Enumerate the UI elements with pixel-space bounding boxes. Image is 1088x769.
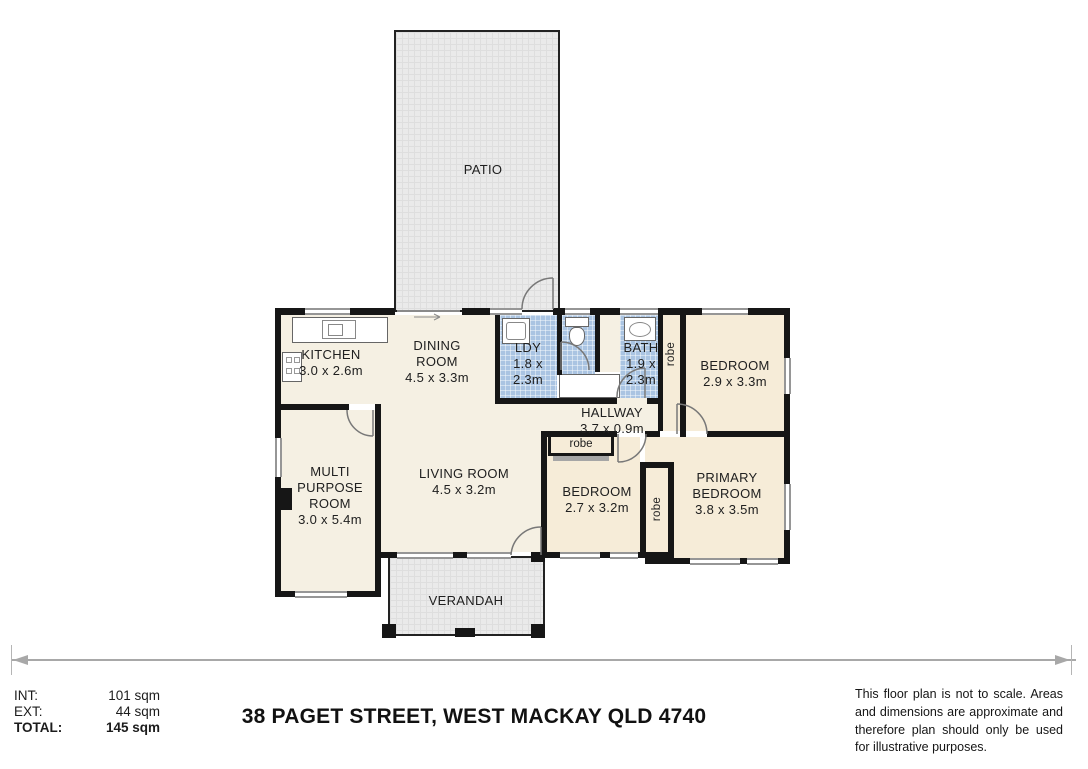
verandah-post — [531, 624, 545, 638]
wall — [740, 558, 747, 564]
toilet-icon — [565, 317, 589, 327]
multi-purpose-room-label: MULTI PURPOSE ROOM 3.0 x 5.4m — [284, 464, 376, 527]
wall — [381, 552, 397, 558]
wall — [462, 308, 490, 315]
dining-room-label: DINING ROOM 4.5 x 3.3m — [402, 338, 472, 386]
window — [620, 308, 658, 315]
wall — [547, 552, 560, 558]
wall — [595, 315, 600, 372]
robe-cupboard: robe — [548, 434, 614, 456]
wall — [275, 591, 295, 597]
wall — [668, 462, 674, 552]
wall — [645, 558, 690, 564]
verandah-label: VERANDAH — [406, 593, 526, 609]
window — [690, 558, 740, 565]
window — [295, 591, 347, 598]
kitchen-label: KITCHEN 3.0 x 2.6m — [284, 347, 378, 379]
wall — [784, 394, 790, 484]
window — [560, 552, 600, 559]
window — [702, 308, 748, 315]
window — [397, 552, 453, 559]
floor-plan-page: robe — [0, 0, 1088, 769]
window — [747, 558, 778, 565]
window — [305, 308, 350, 315]
scale-bar-end-tick — [1071, 645, 1072, 675]
verandah-post — [455, 628, 475, 637]
area-label: TOTAL: — [14, 720, 82, 736]
robe-label: robe — [665, 334, 677, 374]
window — [610, 552, 638, 559]
toilet-bowl — [569, 327, 585, 346]
bedroom-left-label: BEDROOM 2.7 x 3.2m — [547, 484, 647, 516]
wall — [707, 431, 784, 437]
window — [490, 308, 522, 315]
wall — [778, 558, 790, 564]
wall — [275, 308, 281, 438]
bedroom-top-label: BEDROOM 2.9 x 3.3m — [685, 358, 785, 390]
wall — [553, 308, 565, 315]
robe-label: robe — [651, 489, 663, 529]
area-row-int: INT: 101 sqm — [14, 688, 160, 704]
verandah-post — [382, 624, 396, 638]
wall — [784, 308, 790, 358]
wall — [590, 308, 620, 315]
area-label: INT: — [14, 688, 82, 704]
scale-bar-line — [12, 659, 1076, 661]
window — [565, 308, 590, 315]
window — [784, 484, 791, 530]
area-label: EXT: — [14, 704, 82, 720]
wall — [453, 552, 467, 558]
kitchen-sink-bowl — [328, 324, 343, 336]
living-room-label: LIVING ROOM 4.5 x 3.2m — [404, 466, 524, 498]
primary-bedroom-label: PRIMARY BEDROOM 3.8 x 3.5m — [682, 470, 772, 518]
hallway-label: HALLWAY 3.7 x 0.9m — [562, 405, 662, 437]
window — [275, 438, 282, 477]
scale-bar-arrow-left — [13, 655, 28, 665]
robe-shelf — [553, 456, 609, 461]
bath-label: BATH 1.9 x 2.3m — [617, 340, 665, 388]
wall — [495, 398, 617, 404]
wall — [647, 398, 663, 404]
patio-label: PATIO — [413, 162, 553, 178]
scale-bar-end-tick — [11, 645, 12, 675]
bath-sink-bowl — [629, 322, 651, 337]
scale-bar-arrow-right — [1055, 655, 1070, 665]
vanity-bench — [559, 374, 620, 398]
wall — [350, 308, 395, 315]
disclaimer-text: This floor plan is not to scale. Areas a… — [855, 686, 1063, 757]
laundry-tub-bowl — [506, 322, 526, 340]
wall — [600, 552, 610, 558]
wall — [495, 315, 500, 398]
window — [467, 552, 511, 559]
property-address: 38 PAGET STREET, WEST MACKAY QLD 4740 — [120, 705, 828, 729]
robe-label: robe — [569, 438, 592, 450]
window — [784, 358, 791, 394]
area-value: 101 sqm — [82, 688, 160, 704]
wall — [275, 404, 349, 410]
laundry-label: LDY 1.8 x 2.3m — [503, 340, 553, 388]
wall — [557, 315, 562, 375]
